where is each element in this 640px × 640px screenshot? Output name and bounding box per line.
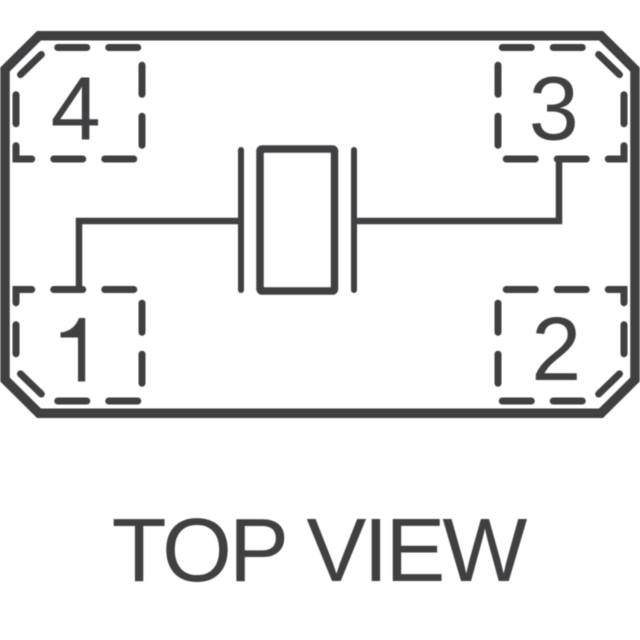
svg-text:TOP VIEW: TOP VIEW [112, 501, 528, 601]
svg-text:3: 3 [529, 60, 579, 160]
svg-text:2: 2 [531, 300, 581, 400]
svg-text:4: 4 [51, 60, 101, 160]
